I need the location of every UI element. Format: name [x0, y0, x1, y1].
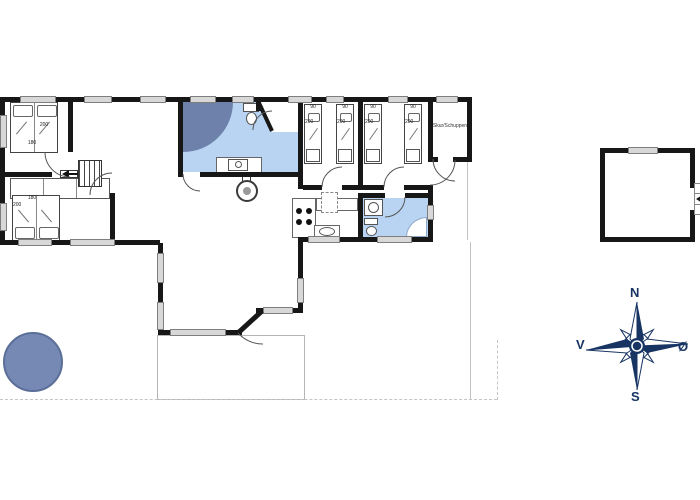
pillow [37, 105, 57, 117]
window-marker [70, 239, 115, 246]
shed-wall [600, 148, 605, 242]
toilet2-tank [364, 218, 378, 225]
dishwasher-dashed [321, 192, 338, 213]
kitchen-counter-left [292, 198, 316, 238]
window-marker [377, 236, 412, 243]
window-marker [157, 253, 164, 283]
pillow [13, 105, 33, 117]
floor-plan-canvas: 200 180 180 200 90 200 90 200 [0, 0, 700, 500]
window-marker [326, 96, 344, 103]
single-bed [364, 104, 382, 164]
wall-segment [467, 97, 472, 162]
compass-label-west: V [576, 338, 585, 351]
bed-size-label: 200 [305, 120, 317, 125]
skur-room-label: Skur/Schuppen [429, 124, 471, 129]
bed-fold [16, 122, 27, 135]
window-marker [18, 239, 52, 246]
footboard [338, 149, 352, 162]
compass-center [629, 338, 645, 354]
bed-size-label: 180 [22, 141, 42, 146]
plan-overlay [0, 0, 700, 500]
compass-label-north: N [630, 286, 639, 299]
wall-segment [0, 172, 52, 177]
stove-burner [296, 208, 302, 214]
wall-segment [342, 185, 384, 190]
shed-door-line [694, 204, 700, 205]
kitchen-sink-basin [319, 227, 335, 236]
shed-door-arrow-icon [696, 194, 700, 204]
compass-spike-sw [621, 348, 636, 363]
bed-size-label: 90 [336, 105, 354, 110]
window-marker [427, 205, 434, 220]
window-marker [297, 278, 304, 303]
wall-segment [428, 97, 433, 160]
bed-divider [36, 196, 37, 240]
bed-fold [309, 128, 318, 140]
wall-segment [404, 185, 428, 190]
bed-fold [41, 210, 52, 223]
compass-main-points [586, 302, 688, 390]
bed-size-label: 180 [22, 196, 42, 201]
window-marker [0, 115, 7, 148]
plot-boundary-line [470, 242, 471, 399]
footboard [406, 149, 420, 162]
footboard [306, 149, 320, 162]
washbasin-faucet [235, 161, 242, 168]
wall-segment [298, 97, 303, 189]
wall-segment [303, 185, 322, 190]
wardrobe-divider [76, 179, 77, 198]
window-marker [628, 147, 658, 154]
compass-spike-ne [639, 330, 654, 345]
bed-fold [369, 128, 378, 140]
bed-fold [341, 128, 350, 140]
wood-stove-center [243, 187, 251, 195]
stove-burner [306, 219, 312, 225]
compass-label-east: Ø [678, 340, 688, 353]
wall-segment [428, 157, 438, 162]
door-arc [433, 159, 455, 181]
single-bed [304, 104, 322, 164]
compass-spike-nw [621, 330, 636, 345]
stove-burner [296, 219, 302, 225]
alcove-boundary-line [467, 162, 468, 240]
window-marker [0, 203, 7, 231]
pillow [15, 227, 35, 239]
wall-segment [405, 193, 433, 198]
door-arc [384, 167, 404, 187]
wall-segment [453, 157, 472, 162]
wall-segment [256, 97, 261, 111]
plot-boundary-dashed-v [497, 340, 498, 400]
footboard [366, 149, 380, 162]
window-marker [232, 96, 254, 103]
stairs-arrow-tail [66, 173, 78, 175]
door-arc [322, 167, 342, 187]
terrace-outline [157, 335, 305, 400]
window-marker [263, 307, 293, 314]
window-marker [157, 302, 164, 330]
wall-segment [358, 97, 363, 189]
door-arc [430, 160, 455, 185]
window-marker [84, 96, 112, 103]
toilet-bowl [246, 112, 257, 125]
bed-size-label: 90 [304, 105, 322, 110]
shed-wall [690, 148, 695, 188]
window-marker [436, 96, 458, 103]
compass-label-south: S [631, 390, 640, 403]
door-arc [183, 174, 200, 191]
bed-size-label: 200 [405, 120, 417, 125]
window-marker [308, 236, 340, 243]
window-marker [170, 329, 226, 336]
compass-spike-se [639, 348, 654, 363]
garden-circle [3, 332, 63, 392]
pillow [39, 227, 59, 239]
bed-size-label: 200 [36, 123, 52, 128]
compass-rose [586, 302, 688, 390]
single-bed [404, 104, 422, 164]
wall-segment [358, 193, 363, 242]
window-marker [140, 96, 166, 103]
wall-segment [68, 97, 73, 152]
bed-size-label: 200 [337, 120, 349, 125]
bed-size-label: 90 [404, 105, 422, 110]
bed-fold [18, 210, 29, 223]
washing-machine-drum [368, 202, 379, 213]
window-marker [20, 96, 56, 103]
wall-segment [200, 172, 303, 177]
bed-size-label: 200 [365, 120, 377, 125]
wall-segment [110, 193, 115, 245]
stairs [78, 160, 102, 187]
stove-burner [306, 208, 312, 214]
window-marker [388, 96, 408, 103]
plot-boundary-dashed-h [0, 399, 497, 400]
shed-wall [600, 237, 695, 242]
bed-fold [409, 128, 418, 140]
bed-size-label: 200 [13, 203, 27, 208]
wall-segment [178, 97, 183, 177]
single-bed [336, 104, 354, 164]
window-marker [190, 96, 216, 103]
toilet2-bowl [366, 226, 377, 236]
bed-size-label: 90 [364, 105, 382, 110]
window-marker [288, 96, 312, 103]
